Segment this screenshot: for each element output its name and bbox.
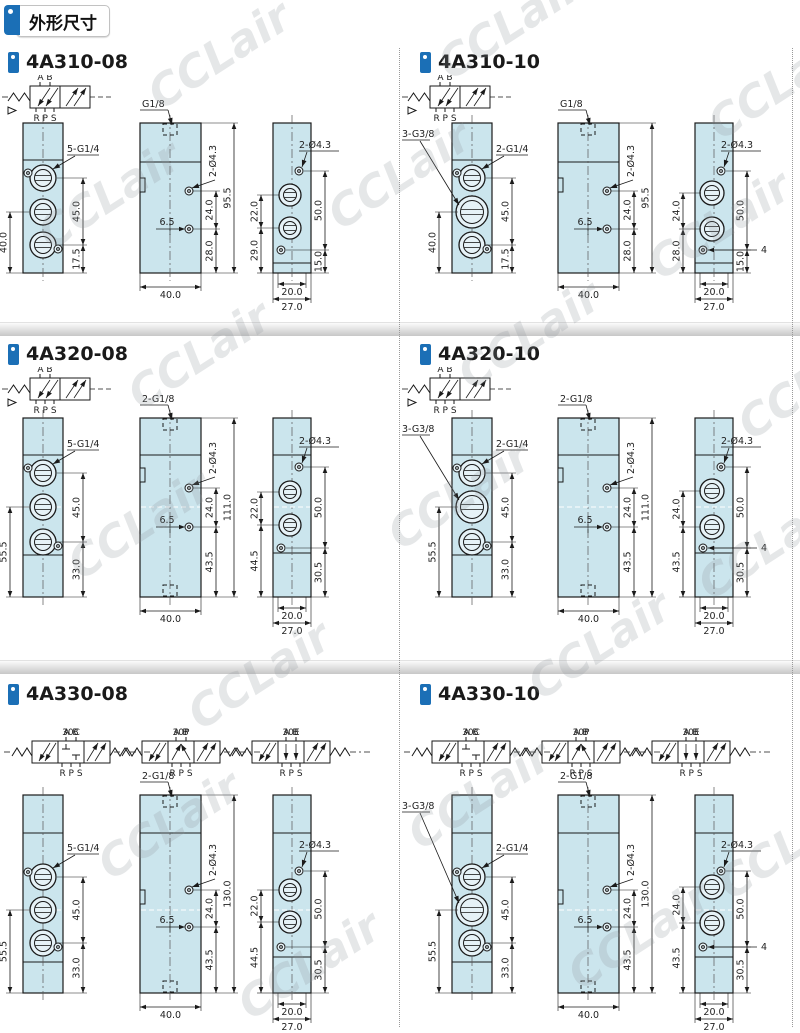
- dim-label: 111.0: [223, 494, 234, 521]
- dim-label: 24.0: [623, 199, 634, 220]
- dim-label: 30.5: [736, 959, 747, 980]
- screw-hole: [603, 484, 611, 492]
- port-hole: [279, 879, 301, 901]
- dim-label: 27.0: [281, 302, 302, 313]
- dim-label: 43.5: [672, 551, 683, 572]
- port-label: 2-G1/8: [560, 771, 592, 782]
- port-hole: [30, 897, 56, 923]
- port-hole: [459, 930, 485, 956]
- port-label: 2-G1/4: [496, 439, 528, 450]
- dim-label: 95.5: [641, 187, 652, 208]
- screw-hole: [699, 943, 707, 951]
- hole-label: 2-Ø4.3: [721, 140, 753, 151]
- side-view: 2-G1/824.043.5130.02-Ø4.36.540.0: [140, 771, 238, 1021]
- schematic-top-ports: A B: [37, 367, 52, 375]
- valve-body: [558, 123, 619, 273]
- port-hole: [700, 479, 724, 503]
- dim-label: 40.0: [428, 232, 439, 253]
- dim-label: 6.5: [159, 915, 174, 926]
- port-label: 3-G3/8: [402, 129, 434, 140]
- screw-hole: [603, 886, 611, 894]
- section-title-text: 4A320-08: [26, 343, 128, 365]
- port-hole: [700, 515, 724, 539]
- section-4a310-08: 4A310-08 A BR P S5-G1/445.017.540.0G1/82…: [0, 45, 400, 322]
- dim-label: 6.5: [159, 217, 174, 228]
- port-label: 5-G1/4: [67, 843, 99, 854]
- section-bullet: [420, 52, 431, 73]
- front-view: 3-G3/82-G1/445.017.540.0: [402, 115, 528, 281]
- dim-label: 50.0: [736, 898, 747, 919]
- port-label: 2-G1/8: [560, 394, 592, 405]
- section-title: 4A330-08: [8, 683, 128, 705]
- dim-label: 24.0: [205, 497, 216, 518]
- dim-label: 33.0: [72, 559, 83, 580]
- screw-hole: [603, 225, 611, 233]
- technical-drawing: A BR P S3-G3/82-G1/445.017.540.0G1/824.0…: [400, 75, 800, 322]
- dim-label: 20.0: [281, 287, 302, 298]
- pilot-symbol: [408, 399, 416, 406]
- dim-label: 17.5: [72, 248, 83, 269]
- valve-schematic: 30EA BR P S: [624, 728, 770, 779]
- screw-hole: [295, 463, 303, 471]
- dim-label: 50.0: [736, 497, 747, 518]
- dim-label: 6.5: [577, 915, 592, 926]
- dim-label: 55.5: [0, 941, 10, 962]
- screw-hole: [185, 923, 193, 931]
- hole-label: 2-Ø4.3: [721, 436, 753, 447]
- hole-label: 2-Ø4.3: [208, 844, 219, 876]
- spring-symbol: [12, 748, 32, 756]
- screw-hole: [603, 923, 611, 931]
- screw-hole: [185, 523, 193, 531]
- side-view: 2-G1/824.043.5111.02-Ø4.36.540.0: [558, 394, 656, 625]
- section-separator: [0, 322, 800, 336]
- screw-hole: [54, 542, 62, 550]
- dim-label: 30.5: [314, 959, 325, 980]
- port-hole: [30, 460, 56, 486]
- port-hole: [459, 232, 485, 258]
- screw-hole: [185, 886, 193, 894]
- dim-label: 43.5: [623, 949, 634, 970]
- dim-label: 24.0: [205, 199, 216, 220]
- screw-hole: [717, 463, 725, 471]
- body-notch: [140, 468, 145, 482]
- screw-hole: [24, 169, 32, 177]
- valve-schematic: A BR P S: [2, 367, 114, 416]
- valve-schematic: 30PA BR P S: [114, 728, 260, 779]
- port-hole: [30, 165, 56, 191]
- dim-label: 24.0: [672, 894, 683, 915]
- dim-label: 27.0: [281, 626, 302, 637]
- technical-drawing: 30CA BR P S30PA BR P S30EA BR P S2-G1/43…: [400, 707, 800, 1033]
- schematic-bottom-ports: R P S: [459, 769, 482, 779]
- screw-hole: [699, 544, 707, 552]
- side-view: 2-G1/824.043.5130.02-Ø4.36.540.0: [558, 771, 656, 1021]
- dim-label: 33.0: [501, 957, 512, 978]
- dim-label: 45.0: [72, 201, 83, 222]
- dim-label: 43.5: [205, 551, 216, 572]
- hole-label: 2-Ø4.3: [208, 442, 219, 474]
- front-view: 3-G3/82-G1/445.033.055.5: [402, 410, 528, 605]
- screw-hole: [603, 523, 611, 531]
- dim-label: 6.5: [577, 217, 592, 228]
- section-title: 4A330-10: [420, 683, 540, 705]
- section-title: 4A310-08: [8, 51, 128, 73]
- dim-label: 24.0: [623, 497, 634, 518]
- bullet-dot: [423, 347, 427, 351]
- dim-label: 50.0: [736, 200, 747, 221]
- side-view: G1/824.028.095.52-Ø4.36.540.0: [558, 99, 656, 301]
- screw-hole: [277, 943, 285, 951]
- end-view: 2-Ø4.350.030.524.043.5420.027.0: [672, 410, 768, 637]
- screw-hole: [277, 246, 285, 254]
- technical-drawing: A BR P S3-G3/82-G1/445.033.055.52-G1/824…: [400, 367, 800, 660]
- section-title-text: 4A330-08: [26, 683, 128, 705]
- section-bullet: [420, 684, 431, 705]
- dim-label: 43.5: [672, 947, 683, 968]
- section-title: 4A310-10: [420, 51, 540, 73]
- dim-label: 15.0: [314, 251, 325, 272]
- dim-label: 130.0: [223, 880, 234, 907]
- bullet-dot: [11, 687, 15, 691]
- page-title: 外形尺寸: [16, 5, 110, 37]
- dim-label: 28.0: [623, 240, 634, 261]
- hole-label: 2-Ø4.3: [626, 145, 637, 177]
- dim-label: 22.0: [250, 498, 261, 519]
- schematic-top-ports: A B: [683, 728, 698, 738]
- port-hole: [30, 494, 56, 520]
- port-label: 2-G1/8: [142, 771, 174, 782]
- screw-hole: [24, 868, 32, 876]
- spring-symbol: [8, 93, 30, 101]
- valve-schematic: 30EA BR P S: [224, 728, 370, 779]
- port-hole: [700, 181, 724, 205]
- bullet-dot: [423, 687, 427, 691]
- dim-label: 45.0: [72, 899, 83, 920]
- hole-label: 2-Ø4.3: [208, 145, 219, 177]
- dim-label: 4: [761, 245, 767, 256]
- dim-label: 28.0: [672, 240, 683, 261]
- valve-body: [140, 795, 201, 993]
- hole-label: 2-Ø4.3: [626, 844, 637, 876]
- dim-label: 55.5: [428, 941, 439, 962]
- section-4a320-08: 4A320-08 A BR P S5-G1/445.033.055.52-G1/…: [0, 337, 400, 660]
- spring-symbol: [330, 748, 350, 756]
- port-hole: [30, 864, 56, 890]
- end-view: 2-Ø4.350.030.522.044.520.027.0: [250, 410, 340, 637]
- port-hole: [459, 460, 485, 486]
- page-header: 外形尺寸: [4, 5, 110, 37]
- port-hole: [459, 529, 485, 555]
- dim-label: 30.5: [314, 562, 325, 583]
- dim-label: 40.0: [578, 1010, 599, 1021]
- port-label: 3-G3/8: [402, 801, 434, 812]
- dim-label: 50.0: [314, 898, 325, 919]
- dim-label: 27.0: [703, 626, 724, 637]
- dim-label: 55.5: [428, 541, 439, 562]
- dim-label: 22.0: [250, 895, 261, 916]
- screw-hole: [483, 245, 491, 253]
- dim-label: 22.0: [250, 201, 261, 222]
- spring-symbol: [412, 748, 432, 756]
- valve-schematic: 30CA BR P S: [404, 728, 550, 779]
- port-label: 2-G1/8: [142, 394, 174, 405]
- schematic-bottom-ports: R P S: [33, 406, 56, 416]
- screw-hole: [277, 544, 285, 552]
- port-label: 2-G1/4: [496, 843, 528, 854]
- dim-label: 29.0: [250, 240, 261, 261]
- port-hole: [459, 864, 485, 890]
- dim-label: 4: [761, 942, 767, 953]
- port-hole: [700, 911, 724, 935]
- section-4a330-10: 4A330-10 30CA BR P S30PA BR P S30EA BR P…: [400, 677, 800, 1029]
- header-accent-tab: [4, 5, 20, 35]
- header-tab-dot: [8, 9, 13, 14]
- dim-label: 50.0: [314, 497, 325, 518]
- technical-drawing: 30CA BR P S30PA BR P S30EA BR P S5-G1/44…: [0, 707, 400, 1033]
- dim-label: 40.0: [578, 290, 599, 301]
- dim-label: 24.0: [623, 898, 634, 919]
- section-title-text: 4A330-10: [438, 683, 540, 705]
- section-title: 4A320-10: [420, 343, 540, 365]
- dim-label: 50.0: [314, 200, 325, 221]
- section-4a320-10: 4A320-10 A BR P S3-G3/82-G1/445.033.055.…: [400, 337, 800, 660]
- schematic-top-ports: A B: [283, 728, 298, 738]
- dim-label: 40.0: [0, 232, 10, 253]
- dim-label: 27.0: [703, 302, 724, 313]
- port-hole: [279, 481, 301, 503]
- bullet-dot: [11, 55, 15, 59]
- section-bullet: [8, 52, 19, 73]
- dim-label: 95.5: [223, 187, 234, 208]
- screw-hole: [24, 464, 32, 472]
- dim-label: 45.0: [501, 201, 512, 222]
- side-view: 2-G1/824.043.5111.02-Ø4.36.540.0: [140, 394, 238, 625]
- screw-hole: [295, 867, 303, 875]
- dim-label: 40.0: [160, 1010, 181, 1021]
- dim-label: 27.0: [281, 1022, 302, 1033]
- schematic-top-ports: A B: [463, 728, 478, 738]
- side-view: G1/824.028.095.52-Ø4.36.540.0: [140, 99, 238, 301]
- schematic-top-ports: A B: [63, 728, 78, 738]
- end-view: 2-Ø4.350.030.522.044.520.027.0: [250, 787, 340, 1033]
- schematic-bottom-ports: R P S: [433, 406, 456, 416]
- dim-label: 28.0: [205, 240, 216, 261]
- front-view: 5-G1/445.017.540.0: [0, 115, 99, 281]
- valve-body: [140, 123, 201, 273]
- pilot-symbol: [408, 107, 416, 114]
- dim-label: 130.0: [641, 880, 652, 907]
- schematic-bottom-ports: R P S: [679, 769, 702, 779]
- end-view: 2-Ø4.350.015.024.028.0420.027.0: [672, 115, 768, 313]
- schematic-bottom-ports: R P S: [279, 769, 302, 779]
- technical-drawing: A BR P S5-G1/445.017.540.0G1/824.028.095…: [0, 75, 400, 322]
- front-view: 5-G1/445.033.055.5: [0, 410, 99, 605]
- dim-label: 43.5: [623, 551, 634, 572]
- pilot-symbol: [8, 107, 16, 114]
- port-hole: [30, 930, 56, 956]
- dim-label: 45.0: [501, 899, 512, 920]
- schematic-top-ports: A B: [437, 75, 452, 83]
- section-title-text: 4A310-08: [26, 51, 128, 73]
- section-title-text: 4A320-10: [438, 343, 540, 365]
- section-bullet: [8, 684, 19, 705]
- hole-label: 2-Ø4.3: [626, 442, 637, 474]
- port-hole: [30, 529, 56, 555]
- dim-label: 33.0: [501, 559, 512, 580]
- body-notch: [558, 890, 563, 904]
- dim-label: 20.0: [703, 611, 724, 622]
- valve-schematic: A BR P S: [2, 75, 114, 124]
- section-bullet: [420, 344, 431, 365]
- port-label: 2-G1/4: [496, 144, 528, 155]
- dim-label: 20.0: [281, 611, 302, 622]
- spring-symbol: [730, 748, 750, 756]
- port-hole: [700, 875, 724, 899]
- port-hole: [30, 199, 56, 225]
- dim-label: 111.0: [641, 494, 652, 521]
- port-hole: [279, 217, 301, 239]
- dim-label: 55.5: [0, 541, 10, 562]
- spring-symbol: [8, 385, 30, 393]
- dim-label: 27.0: [703, 1022, 724, 1033]
- hole-label: 2-Ø4.3: [721, 840, 753, 851]
- port-hole: [279, 911, 301, 933]
- dim-label: 24.0: [672, 200, 683, 221]
- screw-hole: [483, 542, 491, 550]
- port-hole: [700, 217, 724, 241]
- screw-hole: [603, 187, 611, 195]
- dim-label: 30.5: [736, 562, 747, 583]
- end-view: 2-Ø4.350.030.524.043.5420.027.0: [672, 787, 768, 1033]
- front-view: 5-G1/445.033.055.5: [0, 787, 99, 1001]
- screw-hole: [453, 169, 461, 177]
- screw-hole: [717, 167, 725, 175]
- end-view: 2-Ø4.350.015.022.029.020.027.0: [250, 115, 340, 313]
- port-hole: [279, 514, 301, 536]
- dim-label: 43.5: [205, 949, 216, 970]
- port-label: 3-G3/8: [402, 424, 434, 435]
- screw-hole: [483, 943, 491, 951]
- technical-drawing: A BR P S5-G1/445.033.055.52-G1/824.043.5…: [0, 367, 400, 660]
- port-hole: [30, 232, 56, 258]
- schematic-top-ports: A B: [37, 75, 52, 83]
- pilot-symbol: [8, 399, 16, 406]
- spring-symbol: [408, 385, 430, 393]
- screw-hole: [185, 187, 193, 195]
- dim-label: 24.0: [672, 498, 683, 519]
- dim-label: 45.0: [501, 497, 512, 518]
- bullet-dot: [11, 347, 15, 351]
- body-notch: [558, 468, 563, 482]
- dim-label: 6.5: [159, 515, 174, 526]
- dim-label: 15.0: [736, 251, 747, 272]
- port-label: G1/8: [142, 99, 165, 110]
- section-separator: [0, 660, 800, 674]
- section-bullet: [8, 344, 19, 365]
- bullet-dot: [423, 55, 427, 59]
- hole-label: 2-Ø4.3: [299, 840, 331, 851]
- schematic-top-ports: A B: [573, 728, 588, 738]
- dim-label: 24.0: [205, 898, 216, 919]
- screw-hole: [699, 246, 707, 254]
- body-notch: [558, 178, 563, 192]
- hole-label: 2-Ø4.3: [299, 140, 331, 151]
- valve-body: [558, 795, 619, 993]
- screw-hole: [54, 943, 62, 951]
- dim-label: 33.0: [72, 957, 83, 978]
- body-notch: [140, 178, 145, 192]
- screw-hole: [717, 867, 725, 875]
- screw-hole: [453, 464, 461, 472]
- screw-hole: [453, 868, 461, 876]
- section-title-text: 4A310-10: [438, 51, 540, 73]
- section-4a330-08: 4A330-08 30CA BR P S30PA BR P S30EA BR P…: [0, 677, 400, 1029]
- valve-schematic: A BR P S: [402, 367, 514, 416]
- port-label: 5-G1/4: [67, 439, 99, 450]
- dim-label: 20.0: [703, 1007, 724, 1018]
- dim-label: 4: [761, 543, 767, 554]
- port-hole: [459, 165, 485, 191]
- port-label: G1/8: [560, 99, 583, 110]
- screw-hole: [185, 484, 193, 492]
- screw-hole: [54, 245, 62, 253]
- dim-label: 44.5: [250, 550, 261, 571]
- dim-label: 44.5: [250, 947, 261, 968]
- port-label: 5-G1/4: [67, 144, 99, 155]
- valve-schematic: A BR P S: [402, 75, 514, 124]
- body-notch: [140, 890, 145, 904]
- dim-label: 17.5: [501, 248, 512, 269]
- front-view: 2-G1/43-G3/845.033.055.5: [402, 787, 528, 1001]
- dim-label: 20.0: [281, 1007, 302, 1018]
- dim-label: 40.0: [160, 290, 181, 301]
- dim-label: 40.0: [578, 614, 599, 625]
- dim-label: 20.0: [703, 287, 724, 298]
- screw-hole: [295, 167, 303, 175]
- dim-label: 40.0: [160, 614, 181, 625]
- section-title: 4A320-08: [8, 343, 128, 365]
- schematic-bottom-ports: R P S: [59, 769, 82, 779]
- dim-label: 6.5: [577, 515, 592, 526]
- dim-label: 45.0: [72, 497, 83, 518]
- valve-schematic: 30CA BR P S: [4, 728, 150, 779]
- schematic-top-ports: A B: [437, 367, 452, 375]
- port-hole: [279, 184, 301, 206]
- screw-hole: [185, 225, 193, 233]
- hole-label: 2-Ø4.3: [299, 436, 331, 447]
- spring-symbol: [408, 93, 430, 101]
- schematic-top-ports: A B: [173, 728, 188, 738]
- section-4a310-10: 4A310-10 A BR P S3-G3/82-G1/445.017.540.…: [400, 45, 800, 322]
